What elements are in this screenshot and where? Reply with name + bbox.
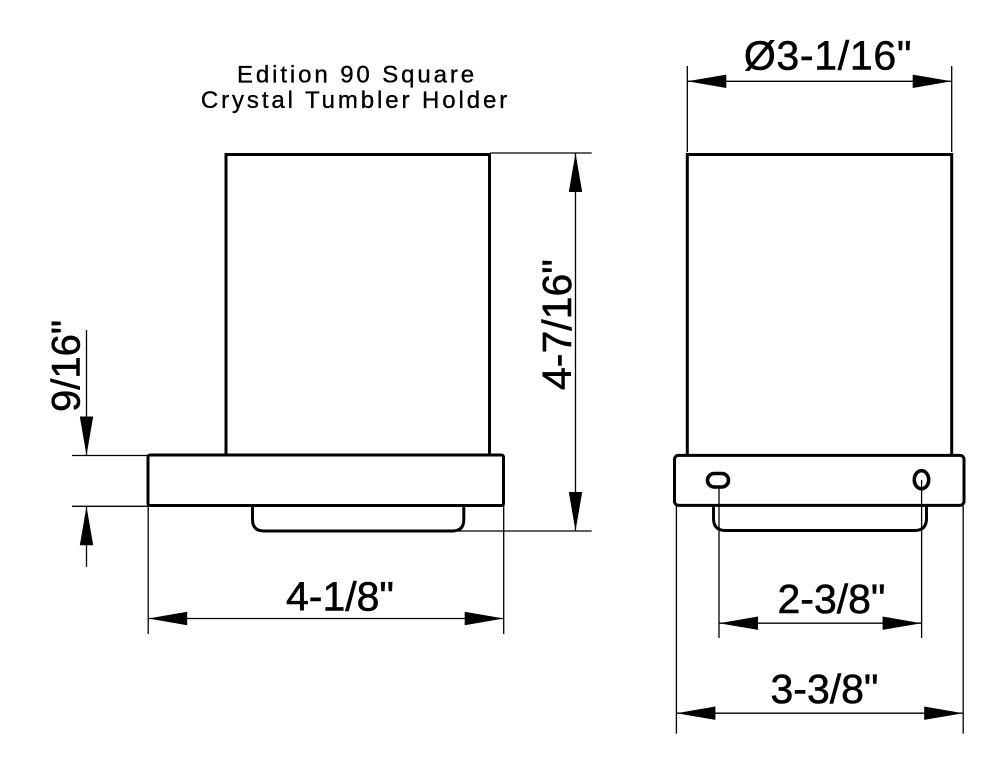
svg-text:2-3/8": 2-3/8": [777, 576, 885, 622]
svg-text:4-7/16": 4-7/16": [534, 259, 580, 390]
svg-text:Edition 90 Square: Edition 90 Square: [237, 62, 477, 89]
svg-text:3-3/8": 3-3/8": [770, 666, 878, 712]
svg-text:9/16": 9/16": [44, 320, 88, 412]
svg-text:Crystal Tumbler Holder: Crystal Tumbler Holder: [201, 87, 510, 114]
svg-text:Ø3-1/16": Ø3-1/16": [744, 33, 912, 79]
svg-text:4-1/8": 4-1/8": [286, 574, 394, 620]
